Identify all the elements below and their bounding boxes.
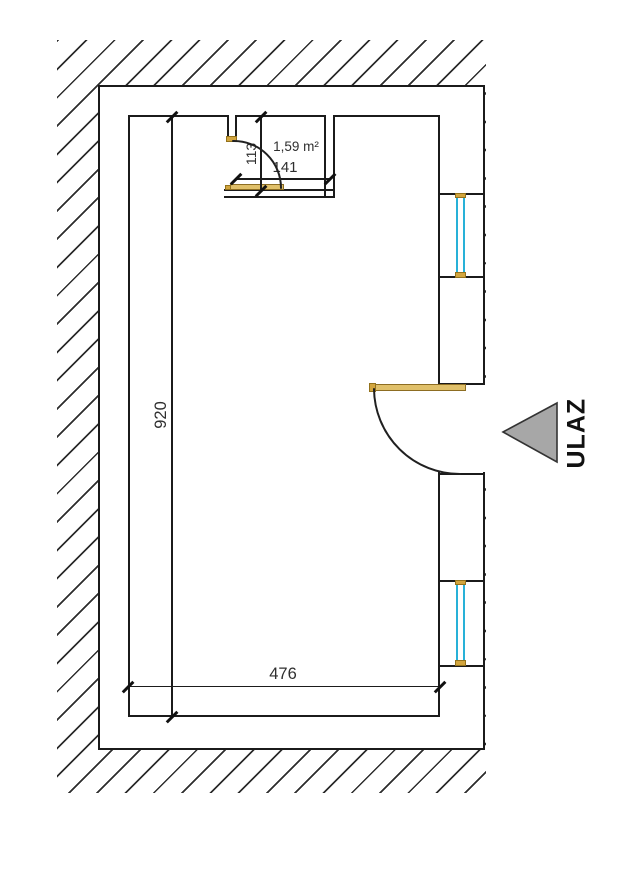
dim-label-room-width: 476 xyxy=(253,666,313,683)
window1-frame-cap-bottom xyxy=(455,272,466,278)
entrance-opening xyxy=(436,385,488,472)
closet-area-label: 1,59 m² xyxy=(265,140,327,154)
dim-line-room-length xyxy=(171,117,173,717)
dim-line-closet-width xyxy=(236,178,330,180)
dim-label-room-length: 920 xyxy=(153,398,171,432)
closet-door-leaf xyxy=(230,184,284,191)
entrance-door-hinge-cap xyxy=(369,383,376,392)
dim-label-closet-depth: 113 xyxy=(244,138,260,170)
window1-frame-cap-top xyxy=(455,193,466,199)
entrance-arrow-icon xyxy=(503,403,557,462)
closet-partition-bottom-outer xyxy=(224,196,335,198)
entrance-door-leaf xyxy=(371,384,466,391)
closet-door-hinge-cap xyxy=(226,136,237,142)
floor-plan-canvas: 920 476 113 141 1,59 m² ULAZ xyxy=(0,0,622,879)
window2-frame-cap-bottom xyxy=(455,660,466,666)
entrance-label: ULAZ xyxy=(564,399,591,469)
dim-label-closet-width: 141 xyxy=(260,160,310,175)
window1-glazing xyxy=(456,194,465,276)
inner-room-wall xyxy=(128,115,440,717)
window2-glazing xyxy=(456,581,465,665)
window2-frame-cap-top xyxy=(455,580,466,586)
closet-door-cap xyxy=(225,185,231,190)
dim-line-room-width xyxy=(128,686,440,688)
entrance-jamb-bottom xyxy=(438,473,485,475)
